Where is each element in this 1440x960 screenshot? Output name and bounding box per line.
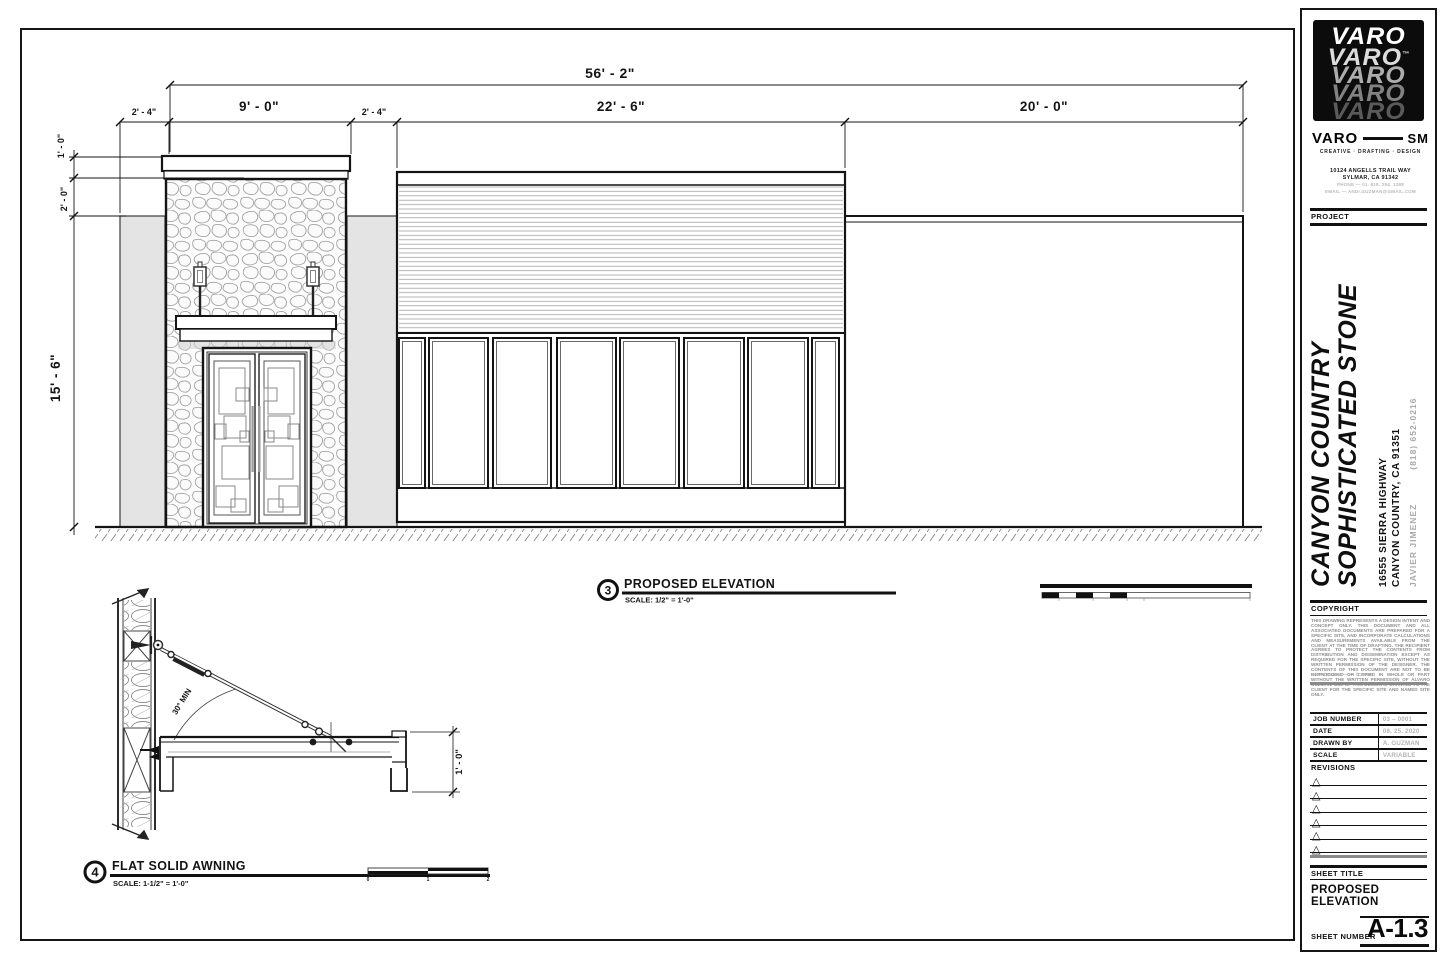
ground-hatch xyxy=(95,529,1262,541)
copyright-paragraph: THIS DRAWING REPRESENTS A DESIGN INTENT … xyxy=(1311,619,1430,698)
elevation-callout: 3 PROPOSED ELEVATION SCALE: 1/2" = 1'-0" xyxy=(599,577,897,605)
dim-left-offset: 2' - 4" xyxy=(132,107,156,117)
title-block: VARO VARO™ VARO VARO VARO VARO SM CREATI… xyxy=(1300,8,1437,952)
revision-row: △ xyxy=(1310,799,1427,813)
revision-row: △ xyxy=(1310,786,1427,800)
project-label: PROJECT xyxy=(1311,212,1349,221)
right-plain-wall xyxy=(845,216,1243,527)
dim-parapet-height: 2' - 0" xyxy=(59,187,69,211)
window-panel xyxy=(429,338,488,488)
brand-tagline: CREATIVE · DRAFTING · DESIGN xyxy=(1302,149,1439,155)
divider xyxy=(1310,223,1427,226)
detail-dim-lines xyxy=(410,726,460,798)
project-name: CANYON COUNTRY SOPHISTICATED STONE xyxy=(1308,284,1362,587)
tower-cap xyxy=(162,156,350,171)
wall-strip-right-of-tower xyxy=(347,216,397,527)
elevation-title: PROPOSED ELEVATION xyxy=(624,577,775,591)
awning-detail-view: 30° MIN xyxy=(85,589,490,888)
detail-scale-note: SCALE: 1-1/2" = 1'-0" xyxy=(113,879,189,888)
horizontal-siding-band xyxy=(399,186,843,332)
brand-sm: SM xyxy=(1408,131,1430,146)
elevation-drawing-canvas: 56' - 2" 2' - 4" 9' - 0" 2' - 4" 22' - 6… xyxy=(0,0,1300,960)
graphic-scale-bar xyxy=(1040,584,1252,601)
table-row: SCALEVARIABLE xyxy=(1310,750,1427,762)
divider xyxy=(1310,865,1427,868)
revision-row: △ xyxy=(1310,840,1427,854)
divider xyxy=(1310,600,1427,603)
firm-address: 10124 ANGELLS TRAIL WAY SYLMAR, CA 91342… xyxy=(1302,168,1439,195)
revisions-label: REVISIONS xyxy=(1311,763,1355,772)
revision-triangle-icon: △ xyxy=(1312,844,1320,856)
revision-row: △ xyxy=(1310,772,1427,786)
project-contact: JAVIER JIMENEZ(818) 652-0216 xyxy=(1408,398,1418,587)
batt-insulation xyxy=(124,793,150,827)
window-panel xyxy=(493,338,551,488)
divider xyxy=(1310,682,1427,685)
door-pull-left xyxy=(252,406,254,472)
varo-logo: VARO VARO™ VARO VARO VARO xyxy=(1313,20,1424,121)
detail-title: FLAT SOLID AWNING xyxy=(112,859,246,873)
window-panel xyxy=(620,338,679,488)
scale-tick: 0 xyxy=(367,877,370,883)
storefront-block xyxy=(397,172,845,522)
copyright-label: COPYRIGHT xyxy=(1311,604,1359,613)
divider xyxy=(1310,879,1427,880)
window-panel xyxy=(399,338,425,488)
callout-number: 3 xyxy=(605,584,612,598)
sheet-number: A-1.3 xyxy=(1367,913,1428,944)
address-line: SYLMAR, CA 91342 xyxy=(1302,175,1439,182)
batt-insulation xyxy=(124,600,150,630)
dim-plain-wall-width: 20' - 0" xyxy=(1020,99,1068,114)
table-row: DATE08. 25. 2020 xyxy=(1310,726,1427,738)
dim-storefront-width: 22' - 6" xyxy=(597,99,645,114)
logo-text: VARO xyxy=(1313,103,1424,121)
revision-row: △ xyxy=(1310,813,1427,827)
grade-line xyxy=(95,527,1262,541)
table-row: JOB NUMBER03 – 0001 xyxy=(1310,714,1427,726)
angle-note: 30° MIN xyxy=(170,687,193,717)
scale-tick: 1 xyxy=(427,877,430,883)
divider xyxy=(1310,615,1427,616)
batt-insulation xyxy=(124,662,150,727)
window-panel xyxy=(557,338,616,488)
proposed-elevation-view: 56' - 2" 2' - 4" 9' - 0" 2' - 4" 22' - 6… xyxy=(48,65,1262,888)
window-panel xyxy=(684,338,744,488)
dim-right-offset: 2' - 4" xyxy=(362,107,386,117)
scale-tick: 2 xyxy=(487,877,490,883)
project-address: 16555 SIERRA HIGHWAY CANYON COUNTRY, CA … xyxy=(1378,428,1403,587)
divider xyxy=(1360,944,1429,947)
table-row: DRAWN BYA. GUZMAN xyxy=(1310,738,1427,750)
callout-number: 4 xyxy=(91,865,99,880)
dim-cap-height: 1' - 0" xyxy=(56,134,66,158)
dim-wall-height: 15' - 6" xyxy=(48,354,63,402)
dim-tower-width: 9' - 0" xyxy=(239,99,279,114)
address-line: 10124 ANGELLS TRAIL WAY xyxy=(1302,168,1439,175)
window-panel xyxy=(748,338,808,488)
tension-rod-assembly xyxy=(131,636,352,752)
revision-row: △ xyxy=(1310,826,1427,840)
storefront-windows xyxy=(399,338,839,488)
left-return-wall xyxy=(120,216,165,527)
entry-tower xyxy=(162,156,350,527)
revisions-list: △ △ △ △ △ △ xyxy=(1310,772,1427,853)
door-pull-right xyxy=(258,406,260,472)
elevation-scale-note: SCALE: 1/2" = 1'-0" xyxy=(625,596,694,605)
window-panel xyxy=(812,338,839,488)
job-info-table: JOB NUMBER03 – 0001 DATE08. 25. 2020 DRA… xyxy=(1310,712,1427,762)
divider xyxy=(1310,208,1427,211)
brand-dash xyxy=(1363,137,1402,140)
entry-double-door xyxy=(203,348,311,527)
email-line: EMAIL — ANDI.GUZMAN@GMAIL.COM xyxy=(1302,189,1439,196)
brand-line: VARO SM xyxy=(1312,130,1429,147)
detail-height-dim: 1' - 0" xyxy=(454,749,465,775)
entry-canopy xyxy=(176,316,336,349)
brand-name: VARO xyxy=(1312,130,1358,147)
copyright-year: COPYRIGHT —— © 2020 xyxy=(1311,673,1373,678)
divider xyxy=(1310,855,1427,858)
dim-overall: 56' - 2" xyxy=(585,65,635,81)
architectural-sheet: 56' - 2" 2' - 4" 9' - 0" 2' - 4" 22' - 6… xyxy=(0,0,1440,960)
sheet-title-label: SHEET TITLE xyxy=(1311,869,1363,878)
awning-slab xyxy=(140,731,407,791)
sheet-title: PROPOSED ELEVATION xyxy=(1311,884,1435,908)
